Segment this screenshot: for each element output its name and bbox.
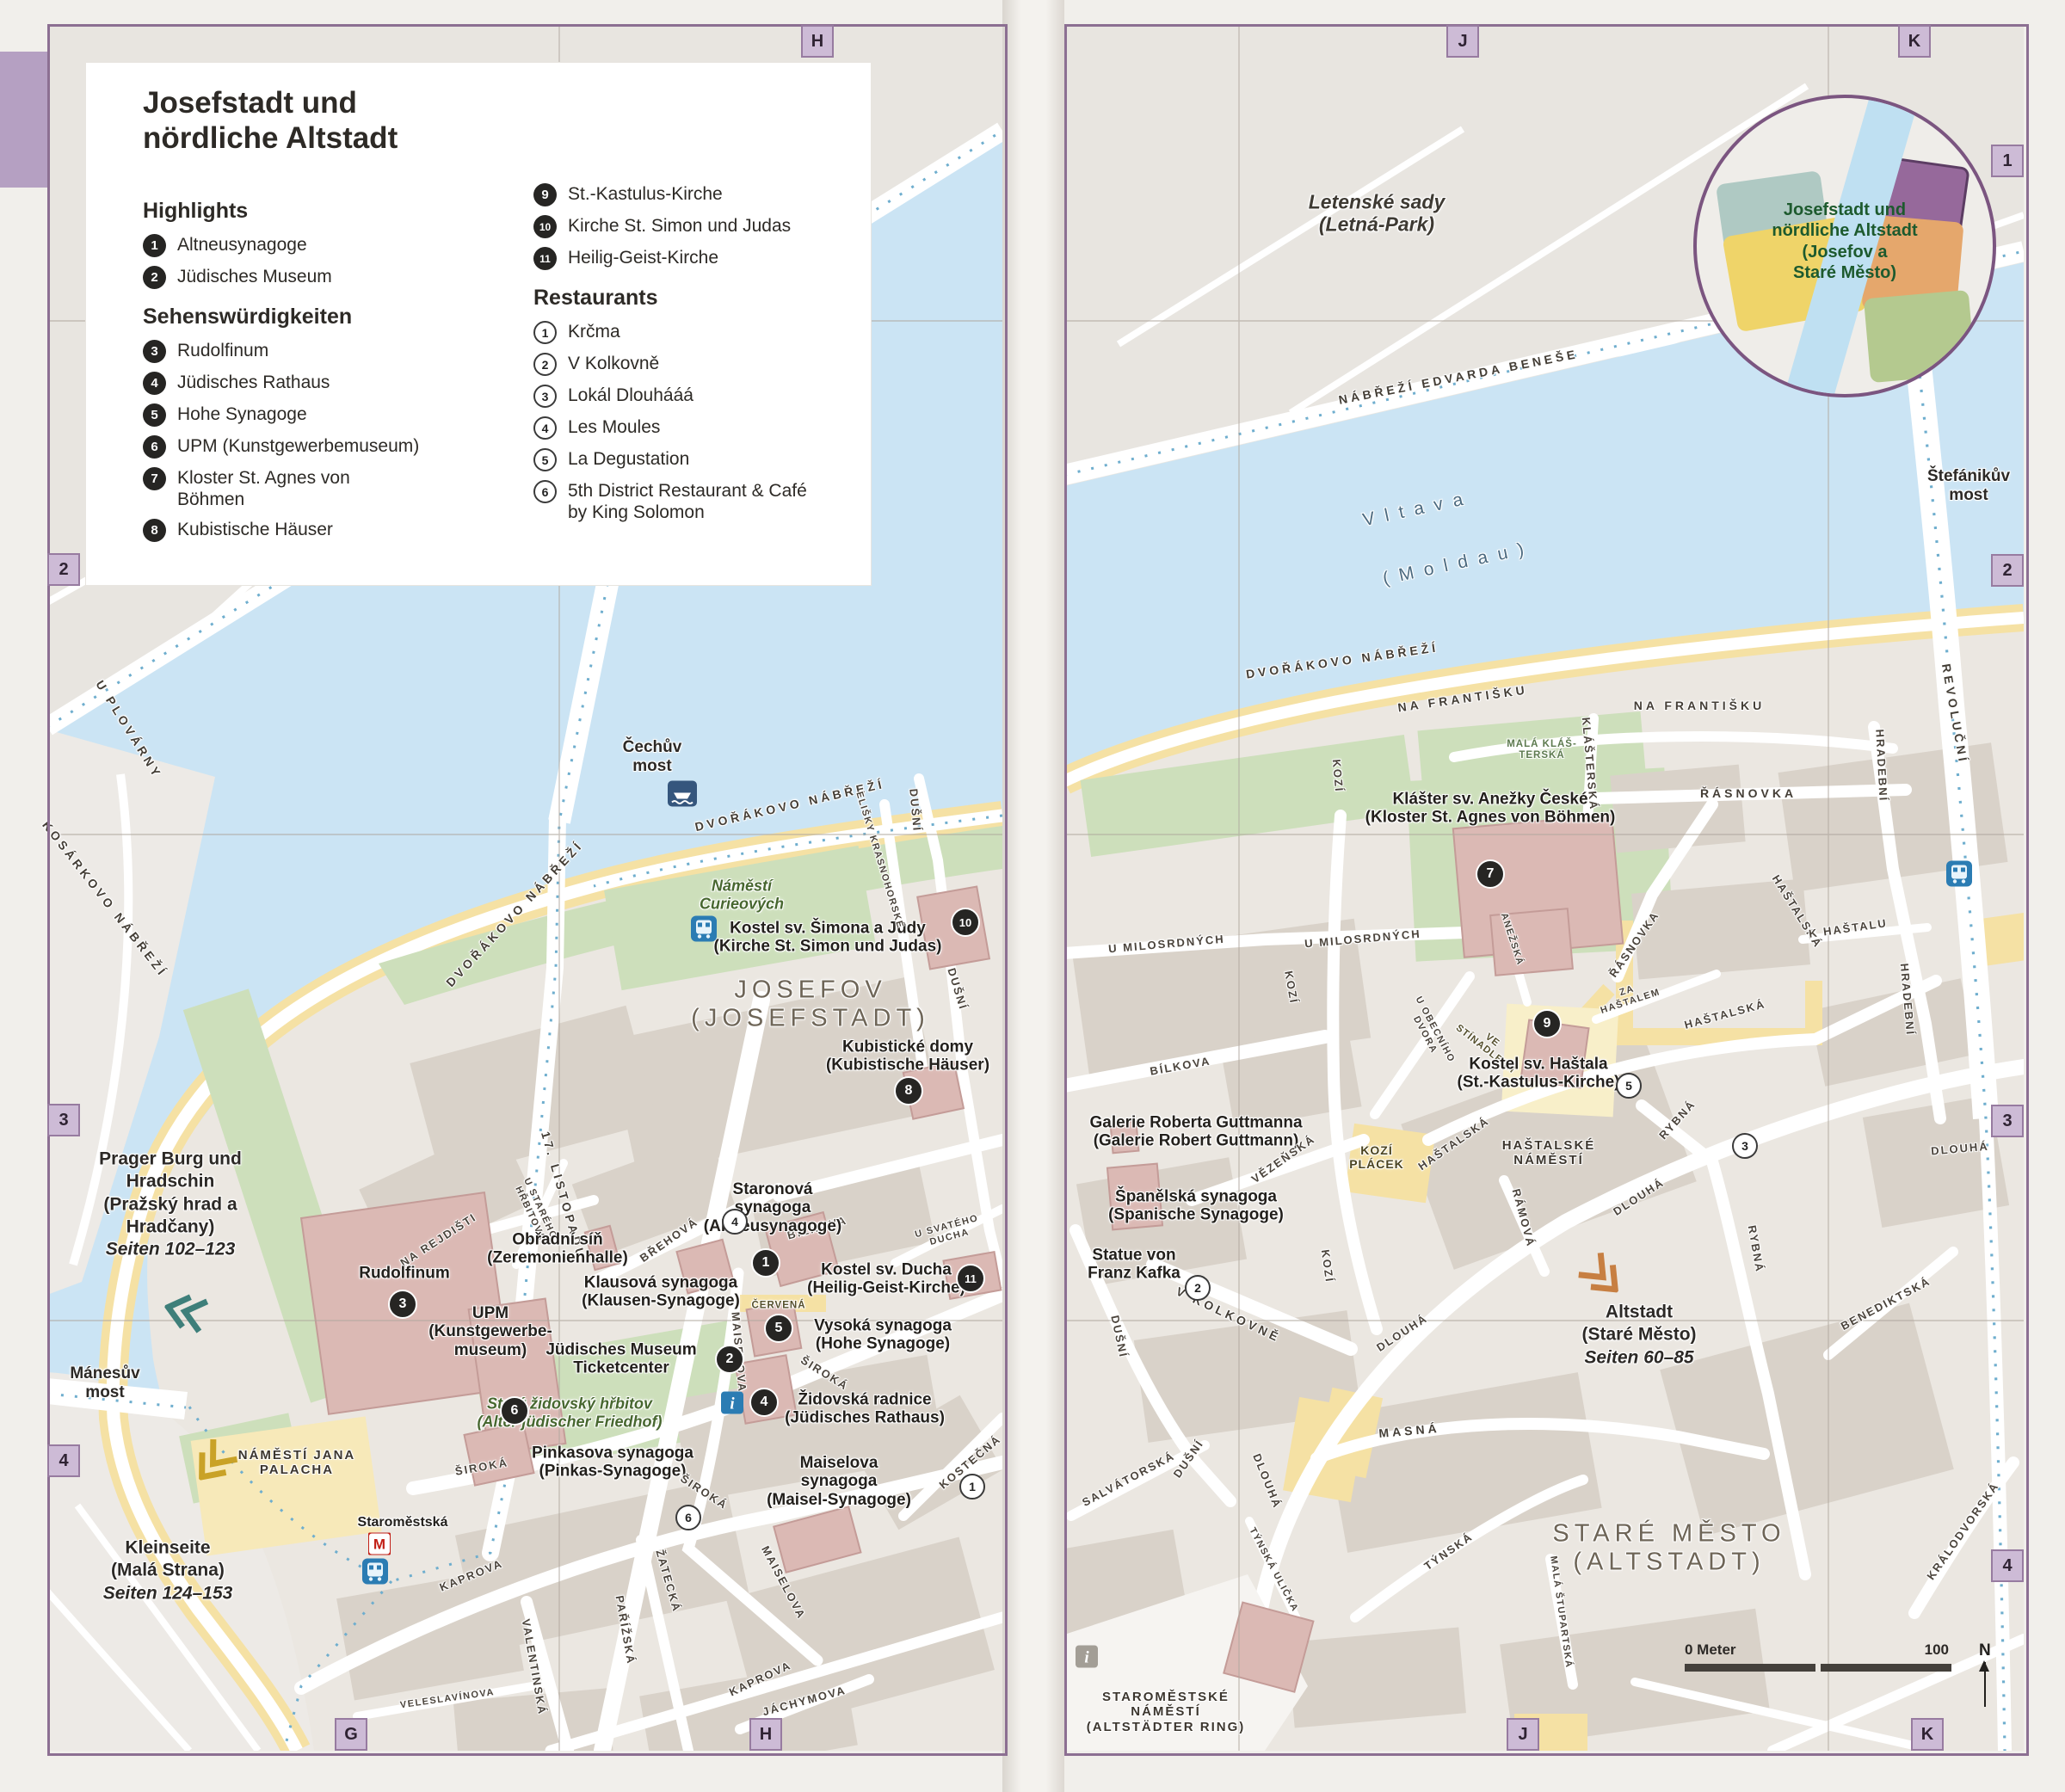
grid-label-J: J (1507, 1718, 1539, 1751)
sight-marker: 11 (956, 1264, 985, 1293)
legend-item-label: 5th District Restaurant & Café by King S… (568, 480, 807, 523)
inset-label: Josefstadt und nördliche Altstadt (Josef… (1697, 200, 1993, 284)
restaurant-marker: 3 (1732, 1133, 1758, 1159)
legend-item: 65th District Restaurant & Café by King … (533, 480, 860, 523)
legend-heading: Highlights (143, 199, 504, 224)
legend-item-label: Kloster St. Agnes von Böhmen (177, 467, 350, 510)
legend-item-label: UPM (Kunstgewerbemuseum) (177, 435, 419, 457)
legend-item-label: Kubistische Häuser (177, 519, 333, 540)
svg-text:i: i (1084, 1649, 1089, 1667)
legend-item-label: Krčma (568, 321, 620, 342)
legend-item-label: Lokál Dlouhááá (568, 385, 693, 406)
grid-label-3: 3 (47, 1104, 80, 1136)
legend-column-right: 9St.-Kastulus-Kirche10Kirche St. Simon u… (533, 183, 860, 532)
info-icon-blue: i (721, 1392, 743, 1419)
sight-marker: 5 (764, 1314, 793, 1343)
legend-item: 3Rudolfinum (143, 340, 504, 363)
map-page-spread: Josefstadt und nördliche Altstadt Highli… (0, 0, 2065, 1792)
tram-icon (691, 916, 717, 946)
legend-heading: Restaurants (533, 286, 860, 311)
scale-segment (1821, 1664, 1951, 1672)
grid-label-1: 1 (1991, 145, 2024, 177)
sight-marker: 8 (894, 1076, 923, 1105)
sight-marker: 11 (533, 247, 557, 270)
scale-bar: 0 Meter 100 (1685, 1641, 1956, 1676)
legend-item-label: Les Moules (568, 416, 660, 438)
legend-item-label: Altneusynagoge (177, 234, 307, 256)
legend-heading: Sehenswürdigkeiten (143, 305, 504, 329)
svg-text:i: i (730, 1395, 735, 1413)
legend-item-label: Jüdisches Rathaus (177, 372, 330, 393)
restaurant-marker: 2 (533, 353, 557, 376)
scale-zero-label: 0 Meter (1685, 1641, 1736, 1659)
grid-label-H: H (801, 25, 834, 58)
legend-item: 2V Kolkovně (533, 353, 860, 376)
sight-marker: 8 (143, 519, 166, 542)
restaurant-marker: 1 (959, 1474, 985, 1499)
legend-item: 1Altneusynagoge (143, 234, 504, 257)
page-gutter (1002, 0, 1064, 1792)
sight-marker: 10 (533, 215, 557, 238)
grid-label-2: 2 (47, 553, 80, 586)
sight-marker: 5 (143, 403, 166, 427)
legend-item: 3Lokál Dlouhááá (533, 385, 860, 408)
sight-marker: 6 (143, 435, 166, 459)
legend-column-left: Highlights1Altneusynagoge2Jüdisches Muse… (143, 183, 504, 551)
info-icon-gray: i (1076, 1646, 1098, 1672)
grid-label-3: 3 (1991, 1105, 2024, 1137)
restaurant-marker: 6 (533, 480, 557, 503)
legend-item: 5Hohe Synagoge (143, 403, 504, 427)
grid-label-K: K (1898, 25, 1931, 58)
restaurant-marker: 1 (533, 321, 557, 344)
restaurant-marker: 2 (1185, 1275, 1211, 1301)
north-compass: N (1979, 1641, 1991, 1707)
map-legend: Josefstadt und nördliche Altstadt Highli… (86, 63, 871, 585)
grid-label-2: 2 (1991, 554, 2024, 587)
metro-icon: M (368, 1533, 391, 1560)
legend-item-label: V Kolkovně (568, 353, 659, 374)
legend-item: 11Heilig-Geist-Kirche (533, 247, 860, 270)
restaurant-marker: 5 (1616, 1073, 1642, 1099)
legend-item-label: Heilig-Geist-Kirche (568, 247, 718, 268)
legend-item: 10Kirche St. Simon und Judas (533, 215, 860, 238)
north-label: N (1979, 1641, 1991, 1660)
grid-label-J: J (1446, 25, 1479, 58)
sight-marker: 4 (749, 1388, 779, 1417)
ferry-icon (668, 781, 697, 811)
grid-label-G: G (335, 1718, 367, 1751)
sight-marker: 2 (715, 1345, 744, 1374)
restaurant-marker: 4 (722, 1209, 748, 1235)
legend-item: 4Les Moules (533, 416, 860, 440)
north-arrow-icon (1984, 1662, 1987, 1707)
legend-item: 1Krčma (533, 321, 860, 344)
legend-item: 4Jüdisches Rathaus (143, 372, 504, 395)
sight-marker: 7 (1476, 859, 1505, 889)
restaurant-marker: 5 (533, 448, 557, 471)
legend-item-label: St.-Kastulus-Kirche (568, 183, 723, 205)
svg-text:M: M (373, 1536, 385, 1553)
inset-district-green (1864, 290, 1976, 383)
sight-marker: 2 (143, 266, 166, 289)
restaurant-marker: 3 (533, 385, 557, 408)
sight-marker: 10 (951, 908, 980, 937)
page-title: Josefstadt und nördliche Altstadt (143, 85, 398, 157)
restaurant-marker: 4 (533, 416, 557, 440)
sight-marker: 6 (500, 1396, 529, 1426)
sight-marker: 9 (1532, 1009, 1562, 1038)
legend-item: 5La Degustation (533, 448, 860, 471)
grid-label-H: H (749, 1718, 782, 1751)
scale-end-label: 100 (1925, 1641, 1949, 1659)
sight-marker: 9 (533, 183, 557, 206)
sight-marker: 3 (388, 1290, 417, 1319)
restaurant-marker: 6 (675, 1505, 701, 1530)
sight-marker: 1 (143, 234, 166, 257)
legend-item: 9St.-Kastulus-Kirche (533, 183, 860, 206)
legend-item: 8Kubistische Häuser (143, 519, 504, 542)
grid-label-4: 4 (47, 1444, 80, 1477)
district-locator-inset: Josefstadt und nördliche Altstadt (Josef… (1693, 95, 1996, 397)
sight-marker: 1 (751, 1248, 780, 1278)
sight-marker: 3 (143, 340, 166, 363)
grid-label-K: K (1911, 1718, 1944, 1751)
legend-item: 6UPM (Kunstgewerbemuseum) (143, 435, 504, 459)
legend-item-label: Kirche St. Simon und Judas (568, 215, 791, 237)
legend-item-label: Rudolfinum (177, 340, 268, 361)
sight-marker: 7 (143, 467, 166, 490)
legend-item: 2Jüdisches Museum (143, 266, 504, 289)
chapter-bookmark-tab (0, 52, 47, 188)
tram-icon (362, 1559, 388, 1589)
legend-item-label: La Degustation (568, 448, 689, 470)
legend-item-label: Hohe Synagoge (177, 403, 307, 425)
tram-icon (1946, 861, 1972, 891)
legend-item: 7Kloster St. Agnes von Böhmen (143, 467, 504, 510)
sight-marker: 4 (143, 372, 166, 395)
grid-label-4: 4 (1991, 1549, 2024, 1582)
legend-item-label: Jüdisches Museum (177, 266, 332, 287)
scale-segment (1685, 1664, 1815, 1672)
